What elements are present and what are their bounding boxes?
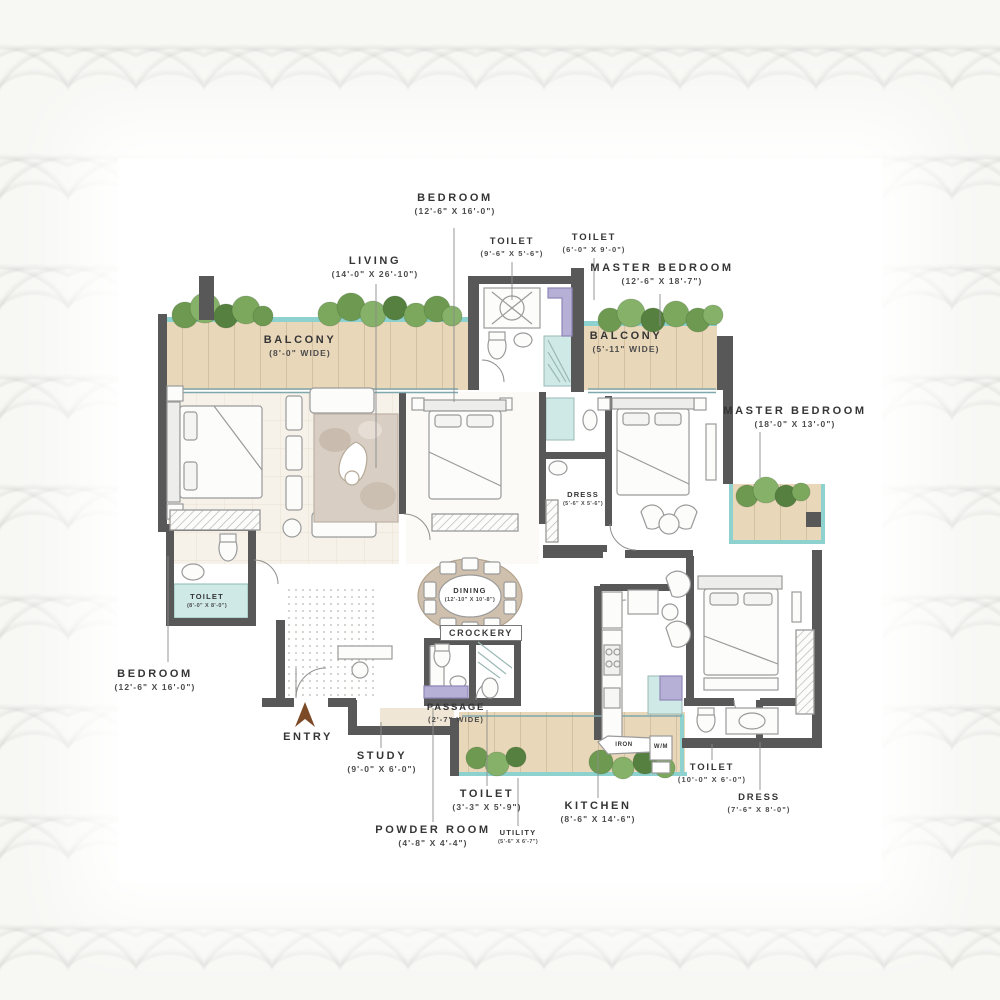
room-label-utility: UTILITY (5'-6" X 6'-7") [498,828,538,845]
room-label-study: STUDY (9'-0" X 6'-0") [347,750,416,774]
room-label-dress-mid: DRESS (5'-6" X 5'-6") [563,490,603,507]
entry-label: ENTRY [283,731,333,743]
entry-arrow-icon [295,702,315,727]
room-label-passage: PASSAGE (2'-7" WIDE) [427,702,485,724]
room-label-balcony-left: BALCONY (8'-0" WIDE) [264,334,337,358]
room-label-toilet-bottom: TOILET (3'-3" X 5'-9") [452,788,521,812]
living-rug [314,414,398,522]
room-label-dining: DINING (12'-10" X 10'-8") [445,586,496,603]
room-label-living: LIVING (14'-0" X 26'-10") [332,255,419,279]
room-label-bedroom-top: BEDROOM (12'-6" X 16'-0") [415,192,496,216]
bed-master-bottom-drawing [662,571,814,714]
room-label-dress-right: DRESS (7'-6" X 8'-0") [727,792,790,814]
iron-board-label: IRON [615,742,632,748]
room-label-master-bedroom-top: MASTER BEDROOM (12'-6" X 18'-7") [590,262,733,286]
room-label-kitchen: KITCHEN (8'-6" X 14'-6") [560,800,635,824]
washing-machine-label: W/M [654,744,668,750]
room-label-balcony-right: BALCONY (5'-11" WIDE) [590,330,663,354]
floor-plan-canvas: BEDROOM (12'-6" X 16'-0") TOILET (9'-6" … [0,0,1000,1000]
toilet-right-fixtures [697,708,778,734]
room-label-toilet-top1: TOILET (9'-6" X 5'-6") [480,236,543,258]
bed-master-top-drawing [598,398,716,534]
room-label-master-bedroom-right: MASTER BEDROOM (18'-0" X 13'-0") [723,405,866,429]
room-label-powder-room: POWDER ROOM (4'-8" X 4'-4") [375,824,490,848]
room-label-toilet-top2: TOILET (6'-0" X 9'-0") [562,232,625,254]
crockery-unit-label: CROCKERY [440,625,522,641]
room-label-toilet-left: TOILET (8'-0" X 8'-0") [187,592,227,609]
room-label-bedroom-left: BEDROOM (12'-6" X 16'-0") [115,668,196,692]
room-label-toilet-right: TOILET (10'-0" X 6'-0") [678,762,746,784]
floor-plan-drawing [0,0,1000,1000]
